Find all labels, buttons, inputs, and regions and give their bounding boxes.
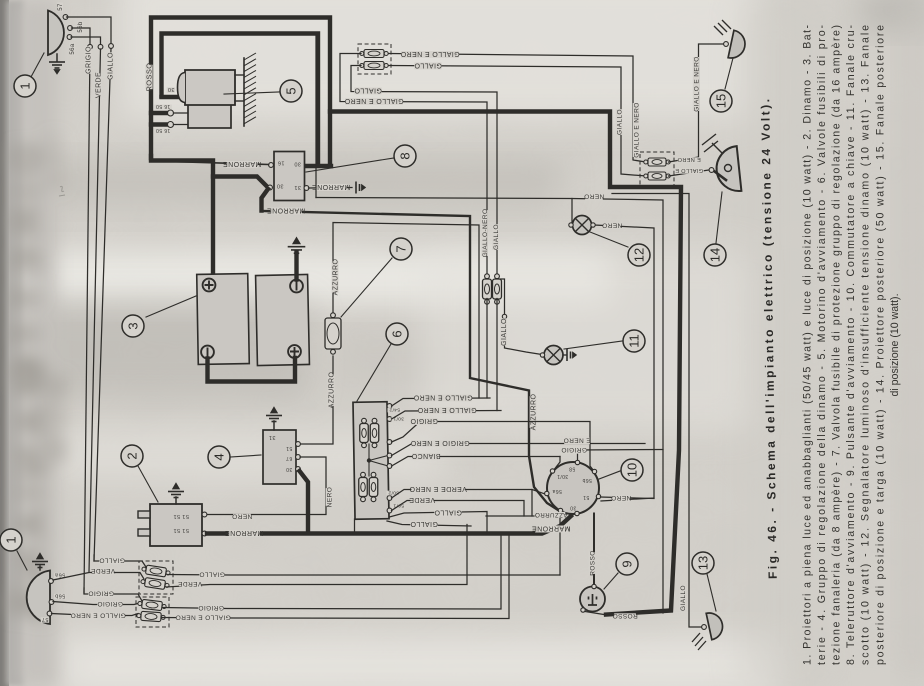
- svg-text:GIALLO: GIALLO: [199, 571, 225, 578]
- svg-text:ROSSO: ROSSO: [612, 612, 637, 619]
- svg-text:7: 7: [394, 245, 409, 252]
- svg-text:56b: 56b: [78, 21, 84, 32]
- svg-text:ROSSO: ROSSO: [589, 550, 596, 575]
- svg-text:1: 1: [4, 536, 19, 543]
- svg-text:E NERO: E NERO: [563, 437, 590, 444]
- svg-text:GIALLO E NERO: GIALLO E NERO: [413, 394, 472, 401]
- svg-text:INE: INE: [39, 135, 70, 197]
- svg-text:GIALLO: GIALLO: [501, 318, 508, 346]
- svg-text:9: 9: [620, 560, 635, 567]
- svg-text:GIALLO-NERO: GIALLO-NERO: [482, 209, 489, 258]
- svg-text:GRIGIO: GRIGIO: [88, 590, 114, 597]
- svg-text:di posizione (10 watt).: di posizione (10 watt).: [889, 293, 901, 396]
- svg-text:16 50: 16 50: [156, 127, 171, 133]
- svg-text:30: 30: [277, 183, 284, 189]
- svg-text:30: 30: [294, 161, 301, 167]
- svg-text:10: 10: [625, 463, 640, 477]
- svg-text:VERDE: VERDE: [178, 580, 203, 587]
- svg-text:16 50: 16 50: [156, 103, 171, 109]
- svg-text:56a: 56a: [552, 488, 562, 494]
- svg-text:30/1: 30/1: [557, 473, 568, 479]
- svg-text:30/1: 30/1: [393, 415, 404, 421]
- svg-text:AZZURRO: AZZURRO: [531, 394, 538, 431]
- svg-text:5: 5: [284, 87, 299, 94]
- svg-text:GIALLO: GIALLO: [99, 557, 125, 564]
- svg-text:8: 8: [398, 152, 413, 159]
- svg-text:ROSSO: ROSSO: [145, 62, 154, 91]
- svg-text:54/2: 54/2: [389, 406, 400, 412]
- svg-text:51: 51: [583, 494, 589, 500]
- svg-text:MARRONE: MARRONE: [223, 160, 262, 167]
- svg-text:NERO: NERO: [232, 513, 252, 520]
- svg-text:VERDE: VERDE: [91, 567, 116, 574]
- svg-text:30: 30: [286, 466, 292, 472]
- svg-text:MARRONE: MARRONE: [532, 525, 571, 532]
- svg-text:GIALLO: GIALLO: [616, 109, 623, 135]
- svg-text:AZZURRO: AZZURRO: [333, 259, 340, 296]
- svg-text:GIALLO E NERO: GIALLO E NERO: [400, 50, 459, 57]
- svg-text:58: 58: [569, 466, 575, 472]
- svg-text:56b: 56b: [582, 477, 592, 483]
- svg-text:NERO: NERO: [584, 193, 604, 200]
- svg-text:MARRONE: MARRONE: [225, 529, 264, 536]
- svg-text:11: 11: [627, 334, 642, 348]
- svg-text:31: 31: [294, 184, 301, 190]
- svg-text:15: 15: [714, 94, 729, 108]
- svg-text:30: 30: [570, 505, 576, 511]
- svg-text:GIALLO: GIALLO: [354, 87, 382, 94]
- svg-text:30: 30: [168, 86, 175, 92]
- svg-text:14: 14: [708, 248, 723, 262]
- svg-text:MARRONE: MARRONE: [267, 207, 306, 214]
- svg-text:VERDE E NERO: VERDE E NERO: [409, 485, 467, 492]
- svg-text:51 51: 51 51: [173, 513, 189, 519]
- svg-text:GIALLO: GIALLO: [108, 52, 115, 80]
- svg-text:GIALLO E NERO: GIALLO E NERO: [633, 102, 640, 157]
- svg-text:GIALLO E NERO: GIALLO E NERO: [693, 56, 700, 111]
- svg-text:GRIGIO: GRIGIO: [97, 600, 123, 607]
- svg-text:2: 2: [125, 452, 140, 459]
- svg-text:GRIGIO: GRIGIO: [198, 604, 224, 611]
- svg-text:MARRONE: MARRONE: [312, 183, 351, 190]
- svg-text:57: 57: [42, 616, 49, 622]
- svg-text:12: 12: [632, 248, 647, 262]
- svg-text:BIANCO: BIANCO: [411, 452, 440, 459]
- svg-text:13: 13: [696, 556, 711, 570]
- svg-text:67: 67: [286, 455, 292, 461]
- svg-text:16: 16: [278, 160, 285, 166]
- svg-text:NERO: NERO: [602, 222, 622, 229]
- svg-text:NERO: NERO: [326, 487, 333, 507]
- svg-text:E NERO: E NERO: [677, 156, 701, 162]
- svg-text:GIALLO E NERO: GIALLO E NERO: [70, 612, 125, 619]
- svg-text:GRIGIO E NERO: GRIGIO E NERO: [410, 439, 469, 446]
- svg-text:GIALLO: GIALLO: [680, 585, 687, 611]
- svg-text:4: 4: [212, 453, 227, 460]
- svg-text:GRIGIO: GRIGIO: [86, 46, 93, 74]
- svg-text:1: 1: [18, 82, 33, 89]
- svg-text:GIALLO: GIALLO: [434, 509, 462, 516]
- svg-text:AZZURRO: AZZURRO: [535, 511, 568, 518]
- svg-text:51 51: 51 51: [173, 527, 189, 533]
- svg-text:NERO: NERO: [611, 494, 631, 501]
- svg-text:GIALLO: GIALLO: [493, 224, 500, 250]
- svg-text:56a: 56a: [70, 43, 76, 54]
- svg-text:51: 51: [286, 445, 292, 451]
- svg-text:1. Proiettori a piena luce ed: 1. Proiettori a piena luce ed anabbaglia…: [802, 25, 814, 665]
- svg-text:GIALLO E NERO: GIALLO E NERO: [344, 97, 403, 104]
- svg-text:VERDE: VERDE: [96, 72, 103, 98]
- svg-text:GIALLO: GIALLO: [414, 62, 442, 69]
- svg-text:56a: 56a: [54, 572, 65, 578]
- svg-text:GIALLO: GIALLO: [410, 520, 438, 527]
- svg-text:VERDE: VERDE: [409, 496, 435, 503]
- svg-text:GRIGIO: GRIGIO: [561, 446, 587, 453]
- svg-text:57: 57: [58, 3, 64, 11]
- svg-text:GIALLO E: GIALLO E: [675, 167, 703, 173]
- svg-text:GIALLO E NERO: GIALLO E NERO: [417, 406, 476, 413]
- svg-text:AZZURRO: AZZURRO: [329, 372, 336, 409]
- svg-text:GRIGIO: GRIGIO: [410, 417, 438, 424]
- svg-text:GIALLO E NERO: GIALLO E NERO: [175, 614, 230, 621]
- svg-text:tezione fanaleria (da 8 ampère: tezione fanaleria (da 8 ampère) - 7. Val…: [831, 25, 843, 665]
- svg-text:6: 6: [390, 330, 405, 337]
- svg-text:31: 31: [269, 434, 276, 440]
- svg-text:3: 3: [126, 322, 141, 329]
- svg-text:MOW: MOW: [41, 375, 74, 470]
- svg-text:56b: 56b: [55, 593, 65, 599]
